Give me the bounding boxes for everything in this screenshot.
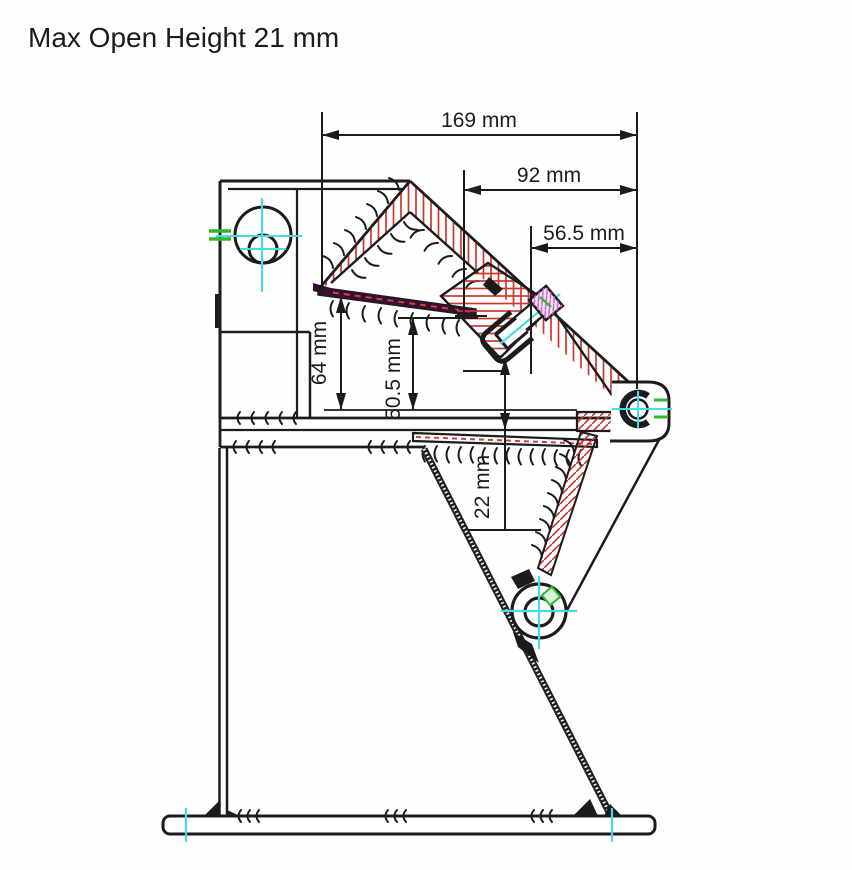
base-plate bbox=[163, 799, 655, 842]
lower-pivot bbox=[501, 576, 577, 649]
support-strut bbox=[424, 449, 612, 818]
bracket-lug bbox=[215, 294, 221, 328]
engineering-drawing: 169 mm 92 mm 56.5 mm 64 mm 50.5 mm 22 mm… bbox=[0, 0, 852, 870]
dim-label-169: 169 mm bbox=[441, 109, 517, 132]
page-title: Max Open Height 21 mm bbox=[28, 22, 339, 53]
dim-label-92: 92 mm bbox=[517, 164, 581, 187]
support-post bbox=[220, 448, 228, 818]
pivot-housing bbox=[610, 382, 672, 441]
dim-label-22: 22 mm bbox=[471, 455, 494, 519]
dim-label-56-5: 56.5 mm bbox=[543, 222, 625, 245]
drawing-page: 169 mm 92 mm 56.5 mm 64 mm 50.5 mm 22 mm… bbox=[0, 0, 852, 870]
dim-label-50-5: 50.5 mm bbox=[382, 338, 405, 420]
dim-label-64: 64 mm bbox=[308, 321, 331, 385]
